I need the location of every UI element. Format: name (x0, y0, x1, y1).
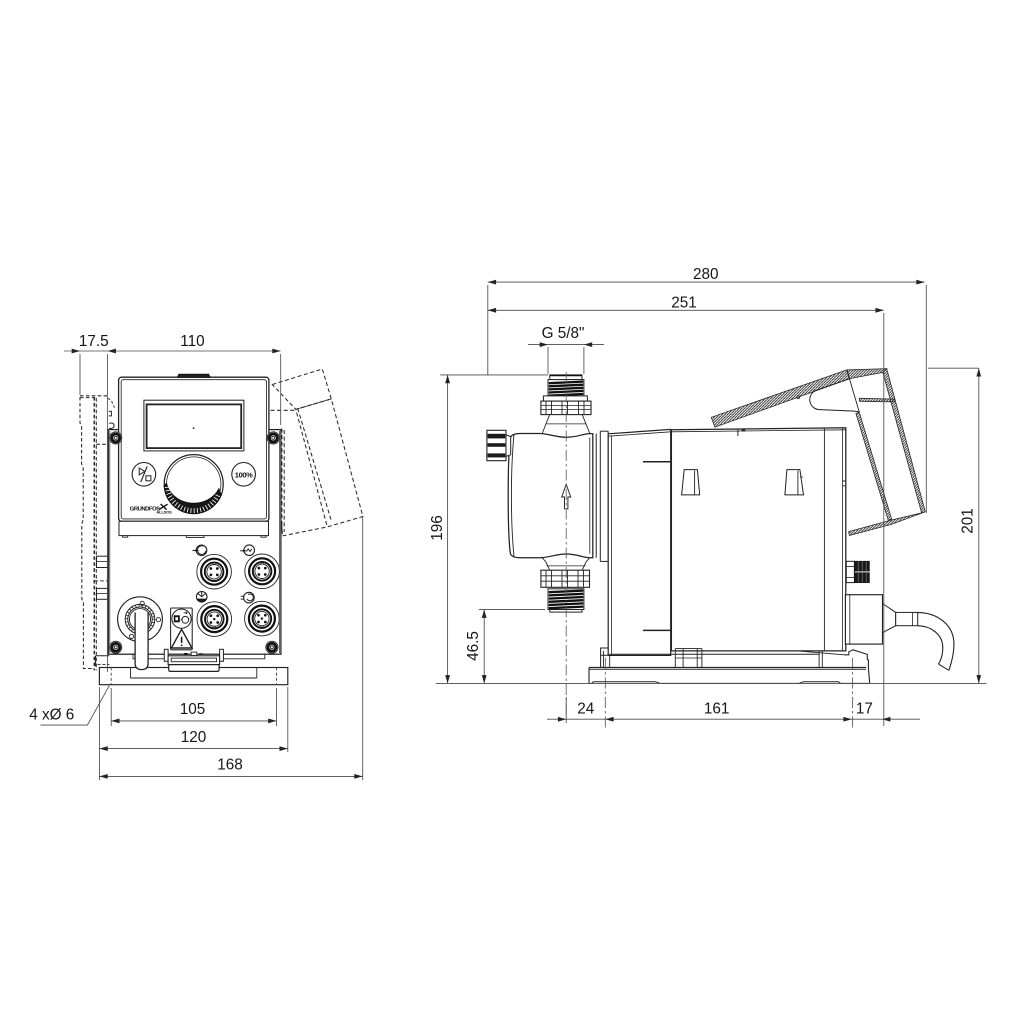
svg-text:201: 201 (959, 508, 976, 534)
svg-text:ALLDOS: ALLDOS (156, 509, 172, 514)
svg-text:4 xØ 6: 4 xØ 6 (29, 706, 74, 723)
svg-text:46.5: 46.5 (465, 631, 482, 661)
svg-text:251: 251 (671, 295, 697, 312)
svg-text:24: 24 (577, 700, 595, 717)
svg-text:17.5: 17.5 (79, 333, 109, 350)
svg-text:17: 17 (856, 700, 873, 717)
svg-text:168: 168 (217, 757, 243, 774)
svg-text:100%: 100% (235, 470, 253, 479)
svg-text:196: 196 (429, 515, 446, 541)
svg-text:120: 120 (181, 729, 207, 746)
svg-text:G 5/8": G 5/8" (542, 325, 585, 342)
svg-text:280: 280 (693, 266, 719, 283)
svg-text:161: 161 (704, 700, 730, 717)
svg-text:105: 105 (180, 701, 206, 718)
svg-text:110: 110 (180, 333, 204, 350)
